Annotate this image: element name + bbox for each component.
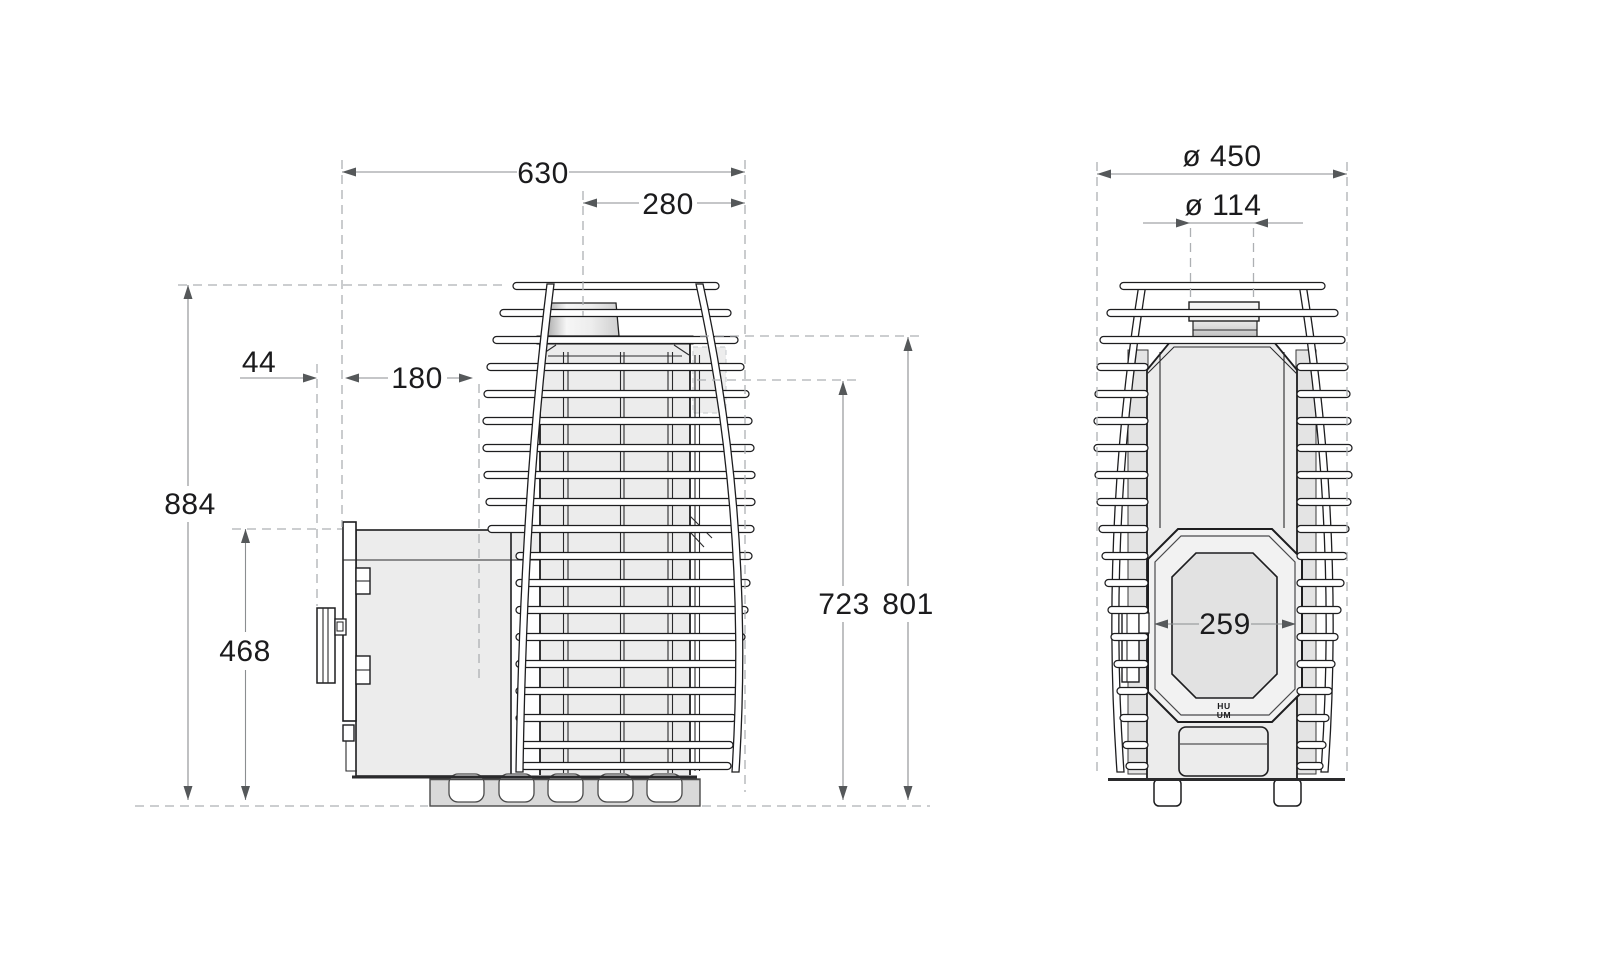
dim-firebox-height: 468	[219, 529, 271, 800]
chimney-collar-front	[1189, 302, 1259, 340]
dim-total-height: 884	[164, 285, 216, 800]
stove-feet	[1154, 779, 1301, 806]
dim-front-section-label: 180	[391, 362, 443, 395]
dim-flue-rear-height: 723	[818, 381, 870, 800]
dim-body-diameter: ø 450	[1097, 140, 1347, 179]
door-handle-side	[317, 608, 346, 683]
dim-body-top-height-label: 801	[882, 588, 934, 621]
dim-door-glass-width-label: 259	[1199, 608, 1251, 641]
dim-center-to-edge: 280	[583, 188, 745, 221]
dim-center-to-edge-label: 280	[642, 188, 694, 221]
dim-firebox-height-label: 468	[219, 635, 271, 668]
dim-total-width: 630	[342, 157, 745, 190]
chimney-collar-side	[544, 303, 619, 336]
technical-drawing-canvas: HU UM	[0, 0, 1600, 960]
dim-total-width-label: 630	[517, 157, 569, 190]
sauna-stove-dimension-drawing: HU UM	[0, 0, 1600, 960]
dim-front-section: 180	[345, 362, 473, 395]
dim-chimney-diameter-label: ø 114	[1185, 189, 1262, 222]
ash-drawer	[1179, 727, 1268, 776]
huum-logo-line2: UM	[1217, 710, 1231, 720]
cage-side-panel-left	[1128, 350, 1148, 774]
firebox-side	[317, 522, 511, 776]
dim-body-top-height: 801	[882, 337, 934, 800]
dim-handle-depth: 44	[240, 346, 317, 383]
base-plate	[430, 774, 700, 806]
huum-logo: HU UM	[1217, 701, 1231, 720]
dim-handle-depth-label: 44	[242, 346, 276, 379]
side-view-drawing	[317, 283, 755, 807]
dim-flue-rear-height-label: 723	[818, 588, 870, 621]
front-view-drawing: HU UM	[1094, 283, 1352, 807]
dim-total-height-label: 884	[164, 488, 216, 521]
dim-chimney-diameter: ø 114	[1143, 189, 1303, 228]
dim-body-diameter-label: ø 450	[1182, 140, 1261, 173]
